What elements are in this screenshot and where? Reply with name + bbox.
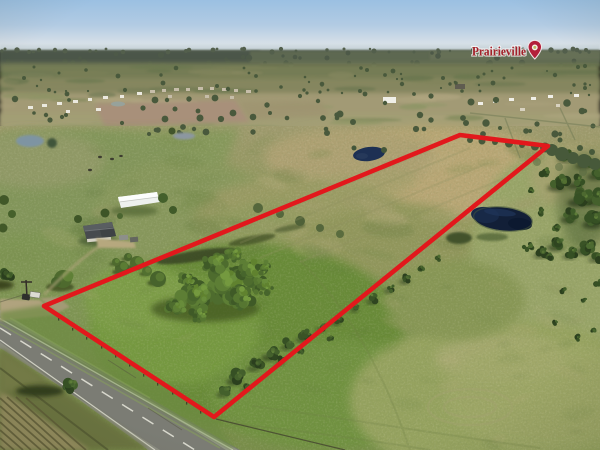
svg-text:Prairieville: Prairieville — [472, 45, 526, 59]
